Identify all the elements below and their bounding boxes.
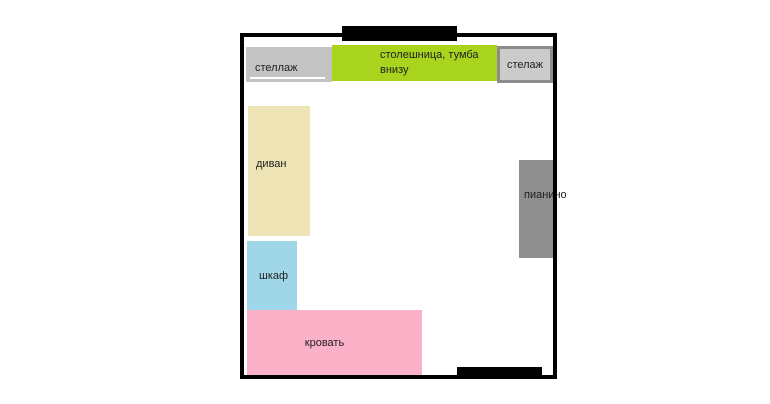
countertop-area: столешница, тумба внизу: [332, 45, 497, 81]
piano-label: пианино: [524, 189, 567, 201]
shelf-left-area: стеллаж: [246, 47, 332, 82]
bed-label: кровать: [305, 337, 344, 349]
wall-opening-marker-top: [342, 26, 457, 41]
wardrobe-area: шкаф: [247, 241, 297, 310]
shelf-left-divider: [250, 77, 325, 79]
shelf-right-area: стелаж: [497, 46, 553, 83]
countertop-label: столешница, тумба внизу: [380, 48, 488, 78]
sofa-area: диван: [248, 106, 310, 236]
floor-plan-canvas: стеллаж столешница, тумба внизу стелаж д…: [0, 0, 770, 404]
bed-area: кровать: [247, 310, 422, 375]
shelf-right-label: стелаж: [507, 59, 543, 71]
sofa-label: диван: [256, 158, 286, 170]
wall-opening-marker-bottom: [457, 367, 542, 376]
piano-area: пианино: [519, 160, 553, 258]
wardrobe-label: шкаф: [259, 270, 288, 282]
shelf-left-label: стеллаж: [255, 62, 297, 74]
